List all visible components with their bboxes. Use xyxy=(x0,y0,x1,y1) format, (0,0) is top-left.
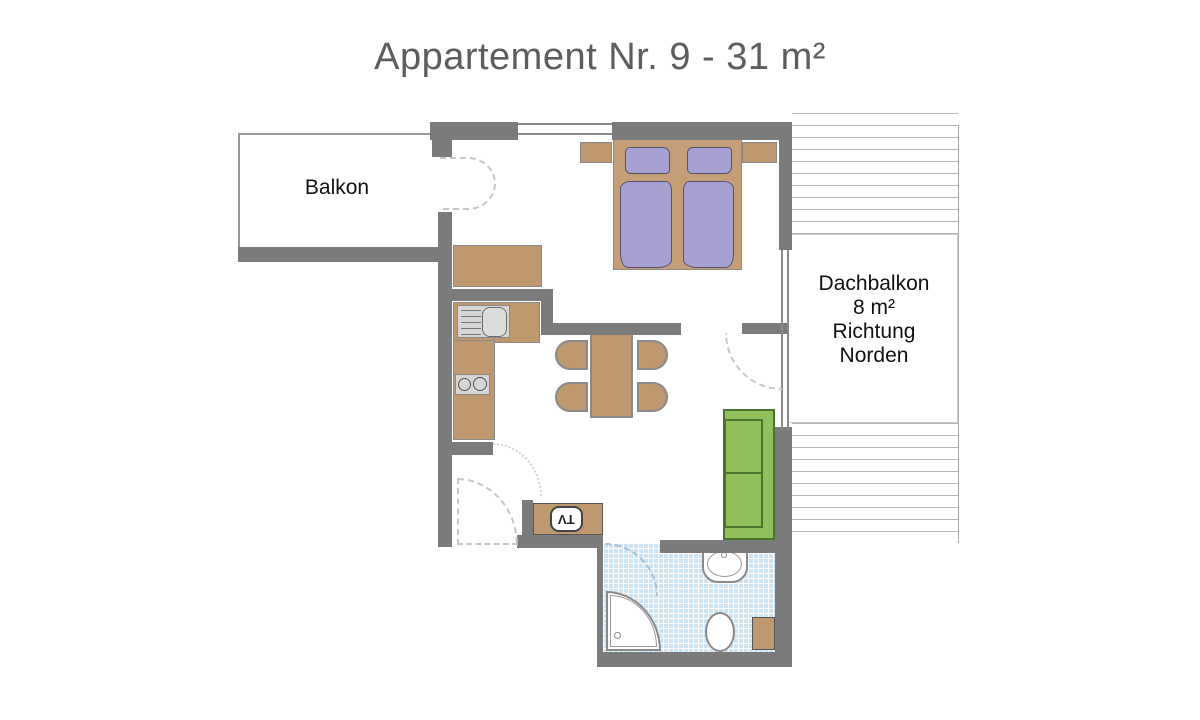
sink-basin xyxy=(482,307,507,337)
sink-drainboard xyxy=(461,310,481,335)
roof-balcony-label-line4: Norden xyxy=(790,344,958,368)
wall-right-lower xyxy=(775,427,792,667)
wall-entry-stub xyxy=(450,442,493,455)
roof-balcony-hatch-top xyxy=(792,113,958,235)
sofa-seat-divider xyxy=(725,472,762,474)
dining-chair-right-top xyxy=(637,340,668,370)
pillow-left xyxy=(625,147,670,174)
blanket-right xyxy=(683,181,734,268)
wall-top-right xyxy=(612,122,792,140)
dining-table xyxy=(590,333,633,418)
stove-burner-left xyxy=(458,378,471,391)
stove-burner-right xyxy=(473,377,487,391)
blanket-left xyxy=(620,181,672,268)
window-top xyxy=(518,123,612,135)
nightstand-right xyxy=(742,142,777,163)
bathroom-cabinet xyxy=(752,617,775,650)
roof-balcony-hatch-bottom xyxy=(792,423,958,543)
pillow-right xyxy=(687,147,732,174)
dining-chair-left-bottom xyxy=(555,382,588,412)
wall-bathroom-left xyxy=(597,545,603,667)
wall-kitchen-lower xyxy=(541,323,681,335)
roofbalcony-glass-wall xyxy=(781,250,789,430)
dining-chair-right-bottom xyxy=(637,382,668,412)
wall-bottom xyxy=(597,652,792,667)
toilet xyxy=(705,612,735,652)
wall-top-left xyxy=(430,122,518,140)
roof-balcony-label-line1: Dachbalkon xyxy=(790,272,958,296)
living-door-swing xyxy=(493,443,542,497)
wall-left-main xyxy=(438,212,452,547)
wall-left-upper xyxy=(432,140,452,157)
shower-drain xyxy=(614,632,621,639)
wall-balcony-bottom xyxy=(238,247,452,262)
tv-screen: TV xyxy=(550,506,583,532)
tv-label: TV xyxy=(558,512,575,527)
page-title: Appartement Nr. 9 - 31 m² xyxy=(0,36,1200,79)
wall-right-upper xyxy=(779,122,792,250)
wall-kitchen-top xyxy=(448,289,553,301)
roof-balcony-label-line2: 8 m² xyxy=(790,296,958,320)
balcony-door-swing xyxy=(440,157,496,210)
wall-bathroom-top xyxy=(660,540,775,553)
wall-tv-bottom xyxy=(517,535,603,548)
roof-balcony-label: Dachbalkon 8 m² Richtung Norden xyxy=(790,272,958,368)
balcony-label: Balkon xyxy=(305,176,369,200)
kitchen-cabinet-upper xyxy=(453,245,542,287)
nightstand-left xyxy=(580,142,612,163)
dining-chair-left-top xyxy=(555,340,588,370)
roofbalcony-door-swing xyxy=(725,333,782,390)
roof-balcony-label-line3: Richtung xyxy=(790,320,958,344)
